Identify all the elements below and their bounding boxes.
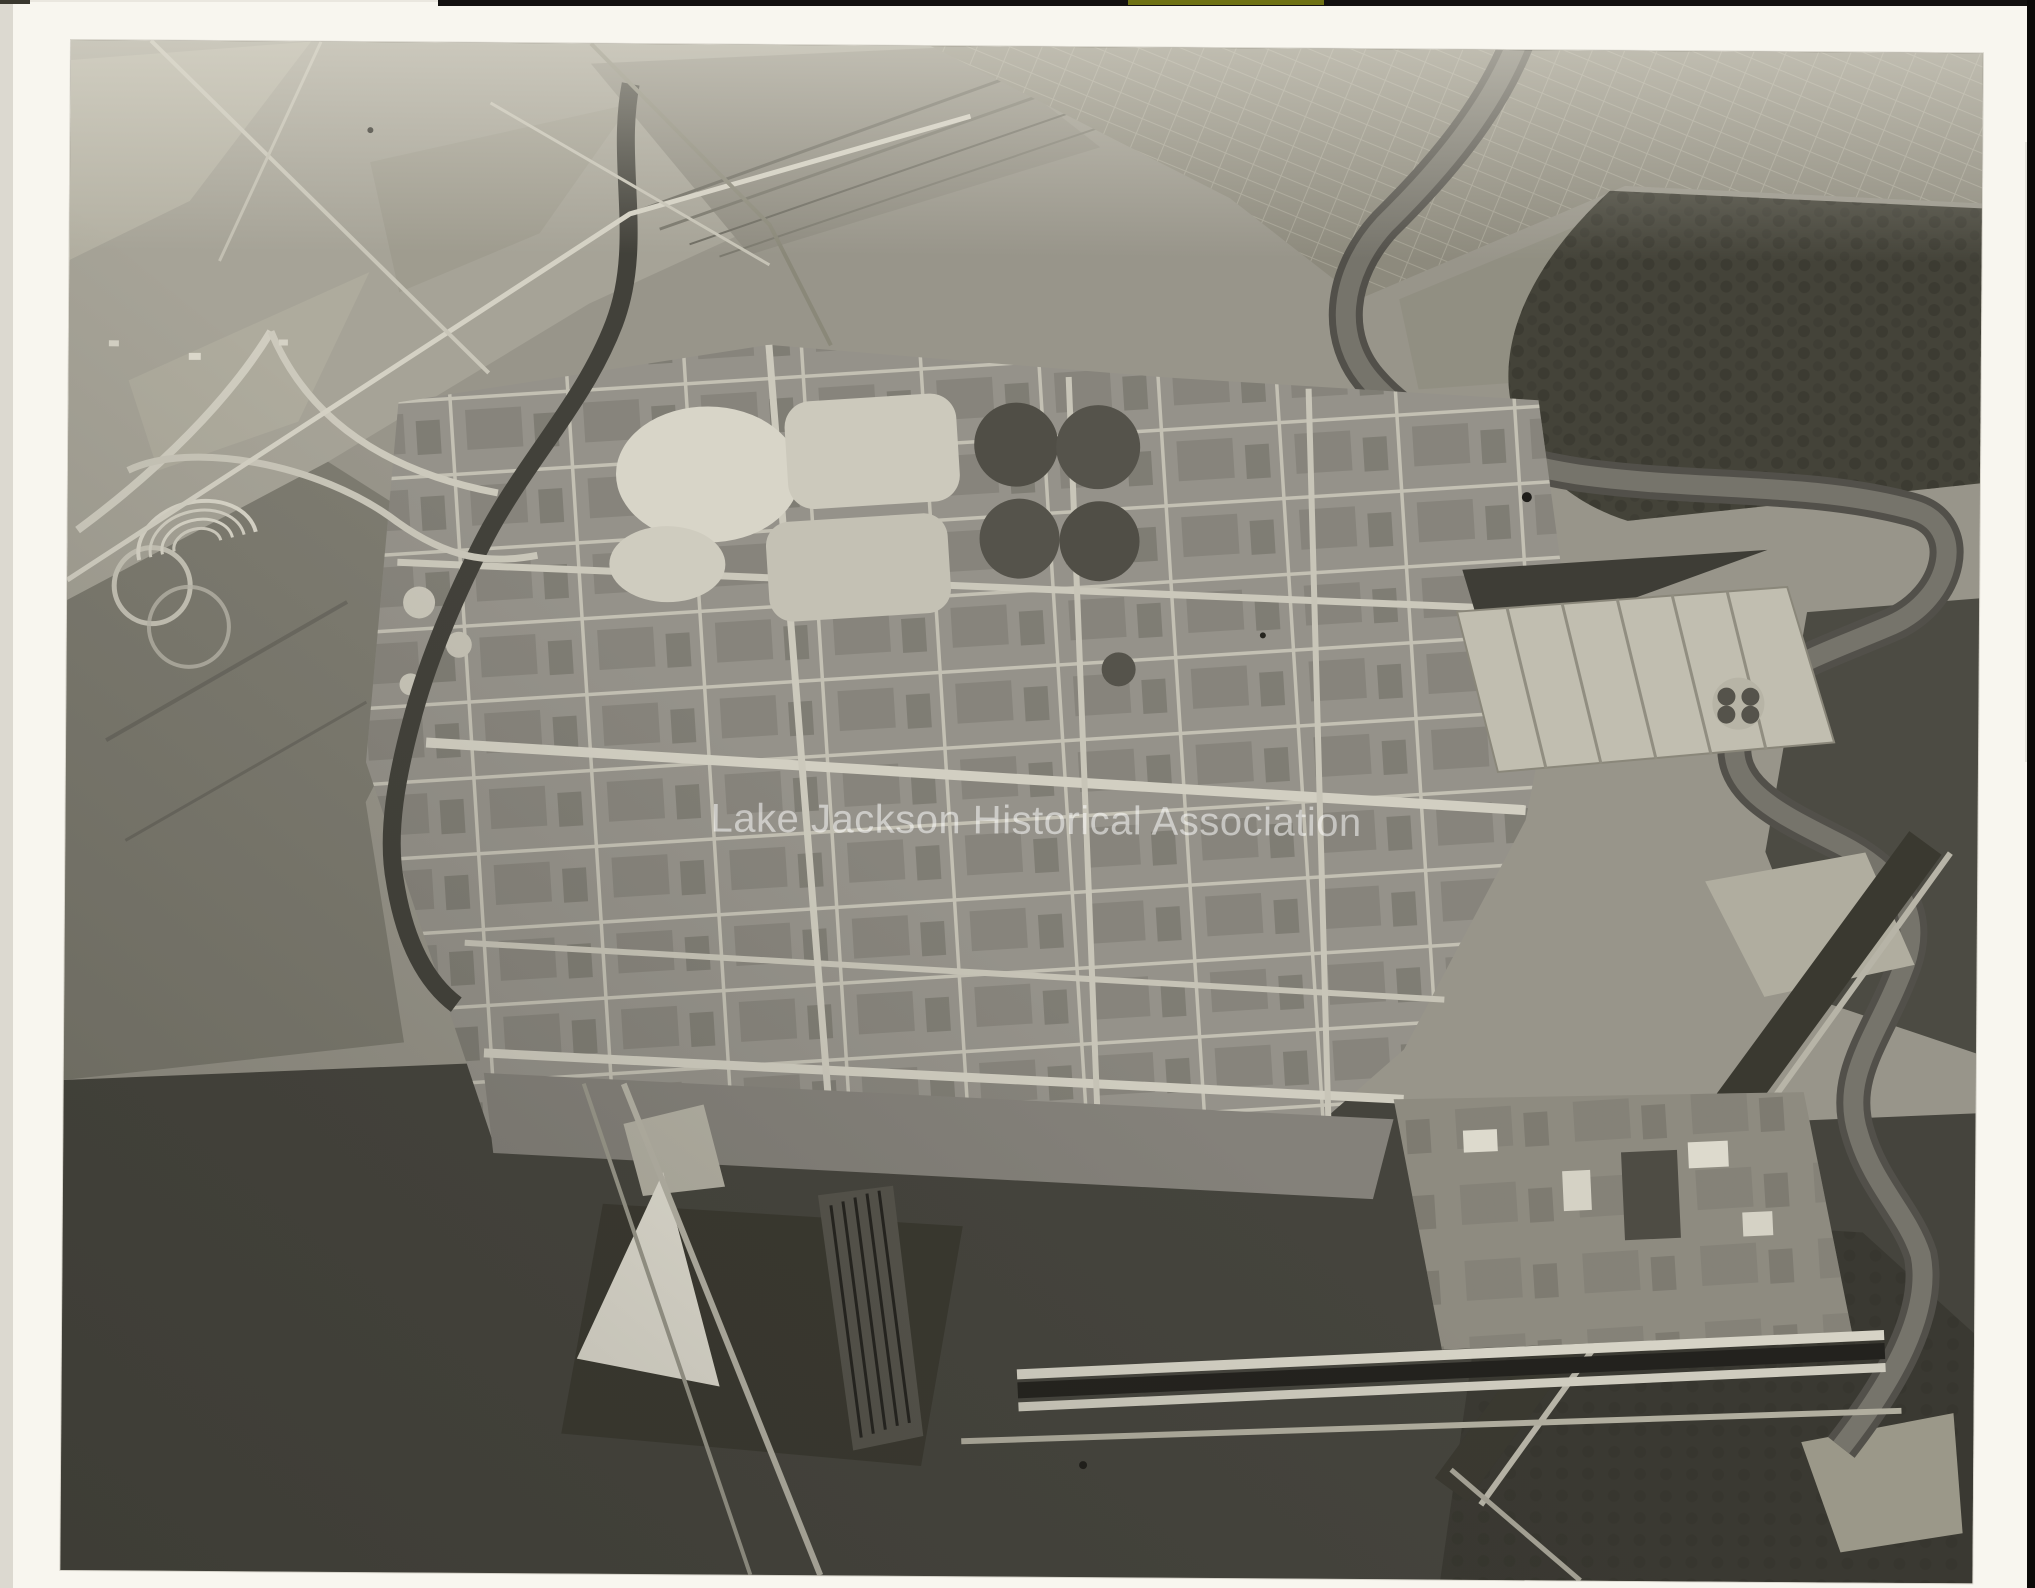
film-edge-right (2027, 0, 2035, 1588)
watermark: Lake Jackson Historical Association (710, 796, 1361, 846)
photo-print-paper: Lake Jackson Historical Association (13, 2, 2027, 1588)
page-edge (0, 0, 13, 1588)
aerial-photograph: Lake Jackson Historical Association (60, 40, 1983, 1583)
film-edge-olive (1128, 0, 1324, 5)
film-edge-corner-mark (0, 0, 30, 4)
scanned-page: Lake Jackson Historical Association (0, 0, 2035, 1588)
